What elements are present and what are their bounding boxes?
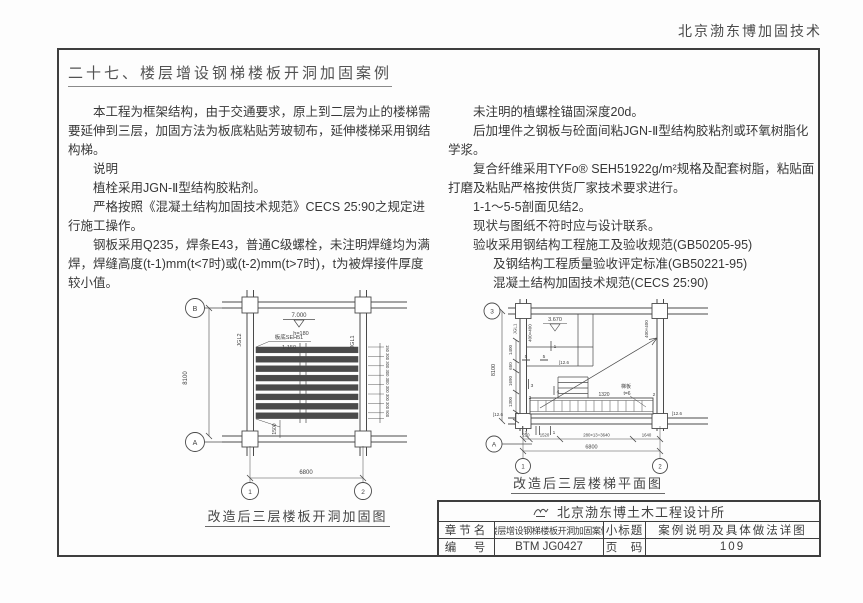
page-number-value: 109 (646, 539, 819, 555)
slab-opening-plan-drawing: 7.000 h=180 板底SEH51 1-150 JGL2 JGL1 150 … (175, 288, 420, 513)
bottom-dimensions: 290 1520 280×13=3640 1640 6800 (520, 426, 663, 458)
elevation-mark: 3.670 (543, 317, 567, 331)
elevation-label: 3.670 (548, 317, 562, 323)
section-marks: 5 5 1 3 2 4 2 3 1 (522, 341, 656, 436)
svg-text:B: B (193, 306, 198, 313)
number-label: 编 号 (439, 539, 495, 555)
svg-text:A: A (193, 440, 198, 447)
right-dimension-chain: 150 300 300 300 300 300 300 300 500 (368, 343, 390, 423)
note-paragraph: 及钢结构工程质量验收评定标准(GB50221-95) (448, 255, 820, 274)
dim-650-label: 650 (508, 362, 513, 370)
note-paragraph: 后加埋件之钢板与砼面间粘JGN-Ⅱ型结构胶粘剂或环氧树脂化学浆。 (448, 122, 820, 160)
caption-slab-plan: 改造后三层楼板开洞加固图 (185, 506, 410, 525)
left-dimension: 8100 (183, 305, 212, 439)
axis-bubble-b: B (186, 299, 226, 318)
channel-label: [12.6 (559, 360, 570, 365)
title-block-row: 编 号 BTM JG0427 页 码 109 (439, 539, 819, 555)
title-block: 北京渤东博土木工程设计所 章节名 楼层增设钢梯楼板开洞加固案例 小标题 案例说明… (437, 500, 821, 557)
svg-text:4: 4 (557, 389, 560, 395)
dim-1400-label: 1400 (508, 344, 513, 355)
note-paragraph: 钢板采用Q235，焊条E43，普通C级螺栓，未注明焊缝均为满焊，焊缝高度(t-1… (68, 236, 434, 293)
dim-1520-label: 1520 (540, 433, 550, 438)
beam-lines (222, 302, 407, 442)
svg-text:A: A (492, 442, 497, 449)
note-paragraph: 复合纤维采用TYFo® SEH51922g/m²规格及配套树脂，粘贴面打磨及粘贴… (448, 160, 820, 198)
dim-6800-label: 6800 (585, 445, 597, 451)
dim-290-label: 290 (522, 433, 530, 438)
dim-1320-label: 1320 (598, 392, 609, 398)
document-page: 北京渤东博加固技术 二十七、楼层增设钢梯楼板开洞加固案例 本工程为框架结构，由于… (0, 0, 863, 603)
column-size-left: 400×400 (528, 324, 533, 342)
dim-8100-label: 8100 (183, 371, 189, 385)
svg-text:1: 1 (248, 489, 252, 496)
axis-bubble-3: 3 (484, 303, 500, 319)
svg-text:5: 5 (525, 354, 528, 360)
elevation-label: 7.000 (291, 313, 307, 319)
svg-text:t=6: t=6 (623, 391, 630, 397)
dim-6800-label: 6800 (299, 470, 313, 476)
svg-text:2: 2 (529, 395, 532, 401)
axis-bubble-2: 2 (355, 483, 372, 500)
chapter-name-value: 楼层增设钢梯楼板开洞加固案例 (495, 522, 604, 538)
number-value: BTM JG0427 (495, 539, 604, 555)
column-size-right: 400×400 (644, 320, 649, 338)
note-paragraph: 1-1～5-5剖面见结2。 (448, 198, 820, 217)
elevation-mark: 7.000 h=180 (283, 313, 315, 337)
note-paragraph: 本工程为框架结构，由于交通要求，原上到二层为止的楼梯需要延伸到三层，加固方法为板… (68, 103, 434, 160)
note-paragraph: 未注明的植螺栓锚固深度20d。 (448, 103, 820, 122)
company-name: 北京渤东博土木工程设计所 (557, 502, 725, 521)
axis-bubble-a: A (486, 436, 532, 452)
svg-text:2: 2 (653, 392, 656, 398)
svg-text:1: 1 (553, 430, 556, 436)
strip-material-label: 板底SEH51 (275, 333, 303, 341)
svg-text:1: 1 (554, 344, 557, 350)
stair-plan-drawing: 8100 1400 650 1690 1300 3 A (480, 295, 715, 477)
svg-text:5: 5 (543, 354, 546, 360)
dim-treads-label: 280×13=3640 (583, 433, 610, 438)
notes-column-right: 未注明的植螺栓锚固深度20d。 后加埋件之钢板与砼面间粘JGN-Ⅱ型结构胶粘剂或… (448, 103, 820, 293)
dim-1300-label: 1300 (508, 396, 513, 407)
subtitle-value: 案例说明及具体做法详图 (646, 522, 819, 538)
chapter-name-label: 章节名 (439, 522, 495, 538)
channel-label: [12.6 (493, 412, 504, 417)
page-label: 页 码 (604, 539, 646, 555)
stair-flight (530, 398, 653, 414)
dim-1500: 1500 (256, 419, 280, 438)
svg-text:梯板: 梯板 (621, 383, 631, 390)
page-header-text: 北京渤东博加固技术 (678, 21, 822, 41)
frp-strips (256, 343, 358, 423)
subtitle-label: 小标题 (604, 522, 646, 538)
note-paragraph: 植栓采用JGN-Ⅱ型结构胶粘剂。 (68, 179, 434, 198)
svg-text:3: 3 (490, 309, 494, 316)
company-logo-icon (533, 506, 551, 518)
note-paragraph: 现状与图纸不符时应与设计联系。 (448, 217, 820, 236)
note-paragraph: 混凝土结构加固技术规范(CECS 25:90) (448, 274, 820, 293)
axis-bubble-1: 1 (516, 459, 531, 474)
beam-label-right: JGL1 (350, 335, 356, 348)
title-block-row: 章节名 楼层增设钢梯楼板开洞加固案例 小标题 案例说明及具体做法详图 (439, 522, 819, 539)
note-paragraph: 验收采用钢结构工程施工及验收规范(GB50205-95) (448, 236, 820, 255)
beam-label: JGL1 (513, 323, 518, 334)
beam-label-left: JGL2 (237, 333, 243, 346)
note-paragraph: 严格按照《混凝土结构加固技术规范》CECS 25:90之规定进行施工操作。 (68, 198, 434, 236)
dim-1640-label: 1640 (642, 433, 652, 438)
chapter-title: 二十七、楼层增设钢梯楼板开洞加固案例 (68, 62, 392, 87)
axis-bubble-1: 1 (242, 483, 259, 500)
svg-text:3: 3 (531, 383, 534, 389)
strip-spacing-chain: 150 300 300 300 300 300 300 300 500 (385, 345, 390, 418)
svg-text:2: 2 (361, 489, 365, 496)
dim-1500-label: 1500 (272, 423, 278, 434)
channel-label: [12.6 (672, 411, 683, 416)
title-block-header: 北京渤东博土木工程设计所 (439, 502, 819, 522)
caption-stair-plan: 改造后三层楼梯平面图 (483, 473, 693, 492)
note-paragraph: 说明 (68, 160, 434, 179)
axis-bubble-2: 2 (653, 459, 668, 474)
dim-1690-label: 1690 (508, 375, 513, 386)
strip-spacing-label: 1-150 (282, 345, 296, 351)
dim-8100-label: 8100 (491, 364, 497, 376)
axis-bubble-a: A (186, 433, 226, 452)
bottom-dimension: 6800 (247, 446, 366, 482)
notes-column-left: 本工程为框架结构，由于交通要求，原上到二层为止的楼梯需要延伸到三层，加固方法为板… (68, 103, 434, 293)
